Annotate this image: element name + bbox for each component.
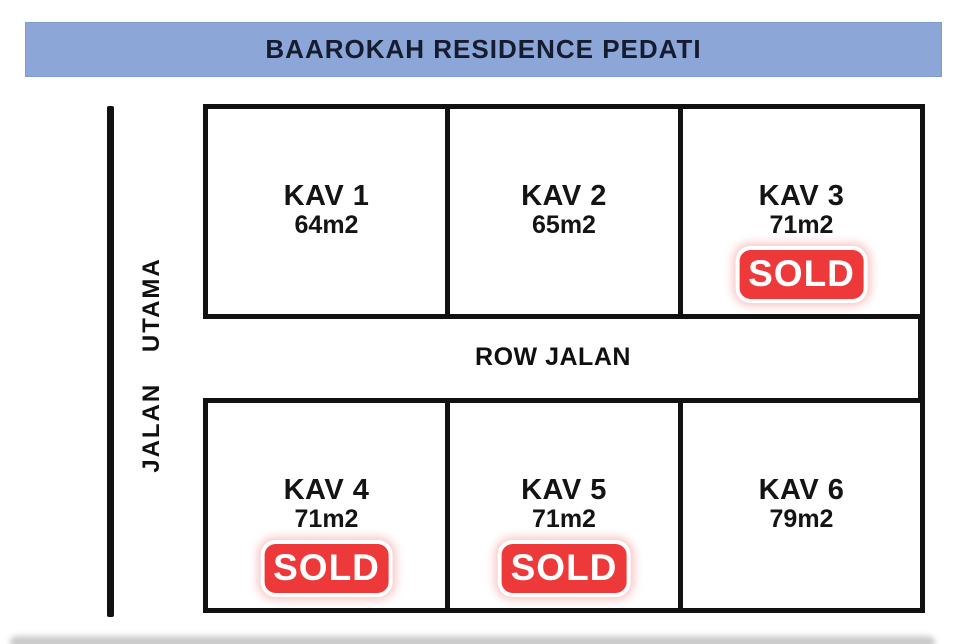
- plot-name: KAV 2: [450, 181, 678, 212]
- sold-badge: SOLD: [502, 544, 627, 593]
- plot-area: 79m2: [683, 506, 920, 533]
- plot-label: KAV 3 71m2: [683, 181, 920, 239]
- plot-name: KAV 1: [208, 181, 445, 212]
- plot-area: 65m2: [450, 212, 678, 239]
- plot-kav-3: KAV 3 71m2 SOLD: [678, 109, 920, 314]
- title-banner: BAAROKAH RESIDENCE PEDATI: [25, 22, 942, 77]
- plot-kav-6: KAV 6 79m2: [678, 403, 920, 608]
- row-road-label: ROW JALAN: [203, 343, 903, 372]
- plot-label: KAV 1 64m2: [208, 181, 445, 239]
- plot-block-bottom: KAV 4 71m2 SOLD KAV 5 71m2 SOLD KAV 6 79…: [203, 398, 925, 613]
- plot-label: KAV 5 71m2: [450, 475, 678, 533]
- plot-area: 71m2: [450, 506, 678, 533]
- plot-area: 71m2: [208, 506, 445, 533]
- plot-area: 64m2: [208, 212, 445, 239]
- main-road-line: [107, 106, 114, 617]
- sold-badge: SOLD: [264, 544, 389, 593]
- plot-label: KAV 4 71m2: [208, 475, 445, 533]
- plot-label: KAV 2 65m2: [450, 181, 678, 239]
- plot-name: KAV 3: [683, 181, 920, 212]
- plot-kav-4: KAV 4 71m2 SOLD: [208, 403, 445, 608]
- plot-area: 71m2: [683, 212, 920, 239]
- plot-label: KAV 6 79m2: [683, 475, 920, 533]
- cropped-bottom-artifact: [10, 636, 935, 644]
- plot-block-top: KAV 1 64m2 KAV 2 65m2 KAV 3 71m2 SOLD: [203, 104, 925, 319]
- plot-kav-1: KAV 1 64m2: [208, 109, 445, 314]
- row-road-right-border: [918, 316, 925, 401]
- plot-name: KAV 5: [450, 475, 678, 506]
- page-title: BAAROKAH RESIDENCE PEDATI: [265, 34, 701, 65]
- site-plan-diagram: BAAROKAH RESIDENCE PEDATI JALAN UTAMA KA…: [0, 0, 968, 644]
- plot-kav-2: KAV 2 65m2: [445, 109, 678, 314]
- main-road-label: JALAN UTAMA: [138, 245, 166, 485]
- plot-name: KAV 4: [208, 475, 445, 506]
- plot-kav-5: KAV 5 71m2 SOLD: [445, 403, 678, 608]
- plot-name: KAV 6: [683, 475, 920, 506]
- sold-badge: SOLD: [739, 250, 864, 299]
